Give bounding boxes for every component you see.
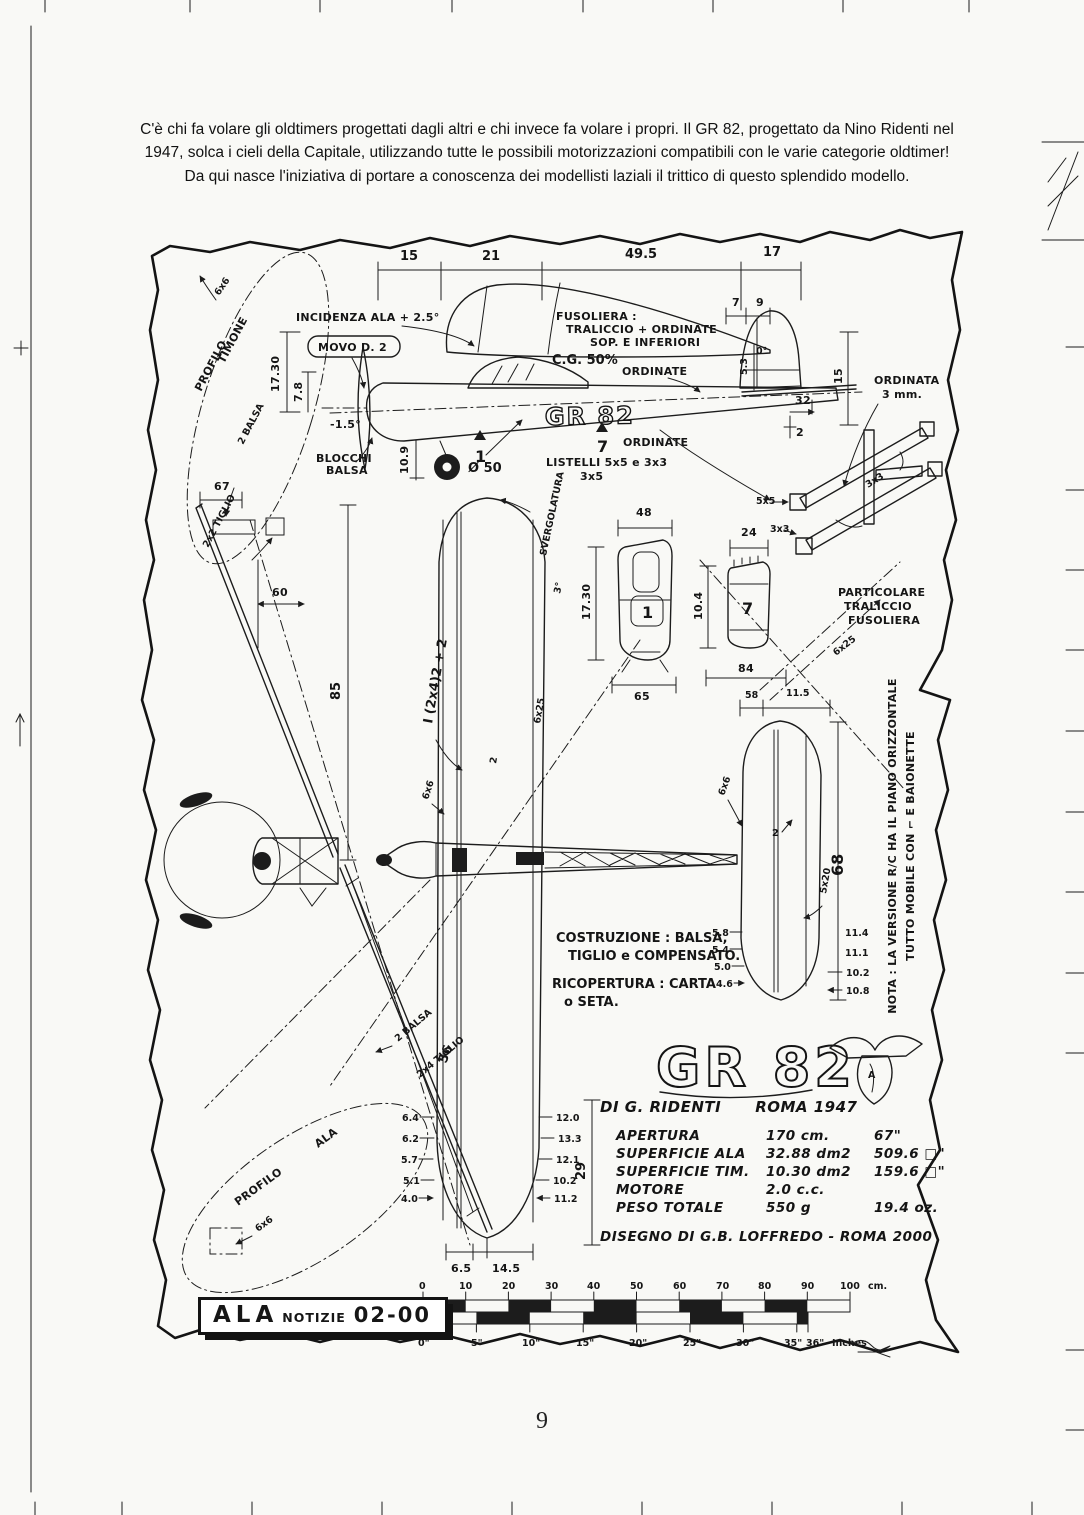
rib-dim: 10.8	[846, 986, 870, 997]
ruler-tick-label: 0"	[418, 1338, 430, 1349]
note-line: o SETA.	[564, 995, 619, 1010]
logo-block: GR 82 A	[656, 1036, 922, 1104]
dim-label: 9	[756, 296, 764, 309]
annotation: ORDINATA	[874, 374, 940, 387]
rib-dim: 13.3	[558, 1134, 581, 1145]
spar-label: I (2x4)2 + 2	[421, 638, 451, 725]
fuselage-lettering: GR 82	[545, 401, 635, 431]
dim-label: 14.5	[492, 1262, 520, 1275]
spec-imperial: 67"	[874, 1128, 972, 1144]
ruler-tick-label: 10	[459, 1281, 473, 1292]
wood-size-label: 6x6	[253, 1214, 275, 1235]
ruler-tick-label: 20"	[629, 1338, 647, 1349]
spec-imperial	[874, 1182, 972, 1198]
rib-dim: 5.1	[403, 1176, 420, 1187]
rib-dim: 6.4	[402, 1113, 419, 1124]
detail-title: TRALICCIO	[844, 600, 912, 613]
ruler-tick-label: 100	[840, 1281, 860, 1292]
ruler-tick-label: 50	[630, 1281, 644, 1292]
dim-label: 17.30	[269, 356, 282, 392]
spec-row: MOTORE 2.0 c.c.	[616, 1182, 972, 1198]
ruler-tick-label: 0	[419, 1281, 426, 1292]
dim-label: 11.4	[845, 928, 869, 939]
wood-size-label: 6x25	[831, 634, 858, 659]
rib-dim: 12.0	[556, 1113, 580, 1124]
front-view	[164, 789, 338, 932]
dim-label: 2	[796, 426, 804, 439]
designer-credit: DI G. RIDENTI	[600, 1098, 721, 1116]
frame-number: 7	[742, 599, 753, 618]
dim-label: -1.5°	[330, 418, 361, 431]
rib-dim: 4.0	[401, 1194, 418, 1205]
dim-label: 10.4	[692, 592, 705, 620]
magazine-word: NOTIZIE	[282, 1310, 346, 1325]
gr82-logo: GR 82	[656, 1036, 856, 1099]
frame-7-section: 7 24 10.4 84	[692, 526, 786, 686]
rib-dim: 6.2	[402, 1134, 419, 1145]
ruler-tick-label: 35"	[784, 1338, 802, 1349]
dim-label: 21	[482, 249, 500, 264]
annotation: TRALICCIO + ORDINATE	[566, 323, 717, 336]
wood-size-label: 3x3	[864, 471, 886, 491]
dim-label: 6.5	[451, 1262, 471, 1275]
annotation: SVERGOLATURA	[538, 470, 567, 556]
ruler-tick-label: 30	[545, 1281, 559, 1292]
rib-dim: 5.7	[401, 1155, 418, 1166]
tailplane-outline	[741, 721, 821, 1000]
spec-table: DI G. RIDENTI ROMA 1947 APERTURA 170 cm.…	[600, 1098, 972, 1245]
rib-dim: 4.6	[716, 979, 733, 990]
annotation: 2x2 TIGLIO	[201, 493, 238, 549]
annotation: 3x5	[580, 470, 603, 483]
scale-ruler: 0 10 20 30 40 50 60 70 80 90 100 cm. 0" …	[418, 1281, 890, 1357]
side-view: 15 21 49.5 17 GR 82 Ø 50 17.30 7.8 -1.5°…	[269, 245, 862, 500]
ruler-unit-label: Inches	[832, 1338, 867, 1349]
detail-title: PARTICOLARE	[838, 586, 925, 599]
spec-row: SUPERFICIE ALA 32.88 dm2 509.6 □"	[616, 1146, 972, 1162]
magazine-page: { "intro": { "lines": [ "C'è chi fa vola…	[0, 0, 1084, 1515]
spinner	[253, 852, 271, 870]
ruler-tick-label: 90	[801, 1281, 815, 1292]
wood-size-label: 6x6	[212, 275, 232, 297]
spec-name: SUPERFICIE TIM.	[616, 1164, 766, 1180]
dim-label: 11.5	[786, 688, 809, 699]
annotation: 3 mm.	[882, 388, 922, 401]
dim-label: 17	[763, 245, 781, 260]
dim-label: 15	[400, 249, 418, 264]
frame-1-section: 1 48 17.30 65	[580, 506, 676, 703]
magazine-issue-box: ALANOTIZIE02-00	[198, 1297, 448, 1335]
ruler-tick-label: 5"	[471, 1338, 483, 1349]
annotation: PROFILO	[232, 1165, 285, 1208]
annotation: ORDINATE	[622, 365, 687, 378]
engine-label: MOVO D. 2	[318, 341, 387, 354]
note-line: TIGLIO e COMPENSATO.	[568, 949, 740, 964]
annotation: FUSOLIERA :	[556, 310, 637, 323]
dim-label: 0°	[756, 346, 767, 357]
wing-plan-view: SVERGOLATURA 3° I (2x4)2 + 2 2 6x25 6x6 …	[401, 470, 581, 1275]
frame-marker: 1	[475, 447, 486, 466]
dim-label: 7.8	[292, 382, 305, 402]
spec-imperial: 159.6 □"	[874, 1164, 972, 1180]
wood-size-label: 3x3	[770, 524, 789, 535]
dim-label: 48	[636, 506, 652, 519]
drawing-credit: DISEGNO DI G.B. LOFFREDO - ROMA 2000	[600, 1229, 972, 1245]
design-year: ROMA 1947	[755, 1098, 857, 1116]
detail-title: FUSOLIERA	[848, 614, 920, 627]
spec-metric: 550 g	[766, 1200, 874, 1216]
ruler-tick-label: 30"	[736, 1338, 754, 1349]
propeller-blade-tip	[178, 910, 214, 932]
dim-label: 84	[738, 662, 754, 675]
spec-metric: 2.0 c.c.	[766, 1182, 874, 1198]
spec-name: MOTORE	[616, 1182, 766, 1198]
annotation: ALA	[312, 1125, 340, 1150]
dim-label: 2	[488, 756, 500, 764]
spec-row: APERTURA 170 cm. 67"	[616, 1128, 972, 1144]
dim-label: 11.1	[845, 948, 868, 959]
ruler-tick-label: 36"	[806, 1338, 824, 1349]
emblem-letter: A	[868, 1070, 876, 1081]
annotation: SOP. E INFERIORI	[590, 336, 700, 349]
annotation: 3°	[552, 581, 565, 594]
note-line: COSTRUZIONE : BALSA,	[556, 931, 728, 946]
dim-label: 49.5	[625, 247, 657, 262]
spec-name: APERTURA	[616, 1128, 766, 1144]
annotation: ORDINATE	[623, 436, 688, 449]
spec-metric: 170 cm.	[766, 1128, 874, 1144]
ruler-tick-label: 10"	[522, 1338, 540, 1349]
issue-number: 02-00	[354, 1303, 431, 1327]
annotation: 2 BALSA	[236, 401, 267, 446]
dim-label: 15	[832, 368, 845, 384]
spec-row: PESO TOTALE 550 g 19.4 oz.	[616, 1200, 972, 1216]
construction-notes: COSTRUZIONE : BALSA, TIGLIO e COMPENSATO…	[552, 678, 917, 1013]
ruler-tick-label: 60	[673, 1281, 687, 1292]
rc-note: NOTA : LA VERSIONE R/C HA IL PIANO ORIZZ…	[886, 678, 899, 1013]
dim-label: 17.30	[580, 584, 593, 620]
truss-detail: 5x5 3x3 3x3 PARTICOLARE TRALICCIO FUSOLI…	[756, 374, 942, 700]
dim-label: 2	[772, 828, 779, 839]
rib-dim: 12.1	[556, 1155, 579, 1166]
page-number: 9	[0, 1408, 1084, 1435]
spec-metric: 32.88 dm2	[766, 1146, 874, 1162]
dim-label: 7	[732, 296, 740, 309]
frame-number: 1	[642, 603, 653, 622]
dim-label: 32	[795, 394, 811, 407]
rib-dim: 10.2	[553, 1176, 576, 1187]
wood-size-label: 6x6	[420, 779, 437, 801]
spec-row: SUPERFICIE TIM. 10.30 dm2 159.6 □"	[616, 1164, 972, 1180]
technical-drawing: 15 21 49.5 17 GR 82 Ø 50 17.30 7.8 -1.5°…	[0, 0, 1084, 1515]
spec-imperial: 509.6 □"	[874, 1146, 972, 1162]
dim-label: 5.3	[739, 358, 750, 375]
dim-label: 65	[634, 690, 650, 703]
rib-dim: 10.2	[846, 968, 869, 979]
ruler-tick-label: 70	[716, 1281, 730, 1292]
wood-size-label: 6x6	[716, 775, 733, 797]
dim-label: 24	[741, 526, 757, 539]
spec-name: PESO TOTALE	[616, 1200, 766, 1216]
annotation: LISTELLI 5x5 e 3x3	[546, 456, 667, 469]
ruler-tick-label: 15"	[576, 1338, 594, 1349]
rc-note: TUTTO MOBILE CON ⌐ E BAIONETTE	[904, 731, 917, 961]
dim-label: 60	[272, 586, 288, 599]
annotation: INCIDENZA ALA + 2.5°	[296, 311, 440, 324]
cut-here-mark	[1042, 142, 1084, 240]
dim-label: 10.9	[398, 446, 411, 474]
ruler-tick-label: 80	[758, 1281, 772, 1292]
wood-size-label: 6x25	[532, 697, 547, 724]
dim-label: 58	[745, 690, 759, 701]
ruler-tick-label: 25"	[683, 1338, 701, 1349]
ruler-unit-label: cm.	[868, 1281, 887, 1292]
spec-name: SUPERFICIE ALA	[616, 1146, 766, 1162]
frame-marker: 7	[597, 437, 608, 456]
spec-imperial: 19.4 oz.	[874, 1200, 972, 1216]
magazine-name: ALA	[213, 1302, 278, 1328]
ruler-tick-label: 20	[502, 1281, 516, 1292]
note-line: RICOPERTURA : CARTA	[552, 977, 716, 992]
annotation: C.G. 50%	[552, 353, 618, 368]
spec-metric: 10.30 dm2	[766, 1164, 874, 1180]
ruler-tick-label: 40	[587, 1281, 601, 1292]
annotation: BALSA	[326, 464, 368, 477]
rib-dim: 11.2	[554, 1194, 577, 1205]
dim-label: 67	[214, 480, 230, 493]
dim-label: 85	[329, 682, 344, 700]
